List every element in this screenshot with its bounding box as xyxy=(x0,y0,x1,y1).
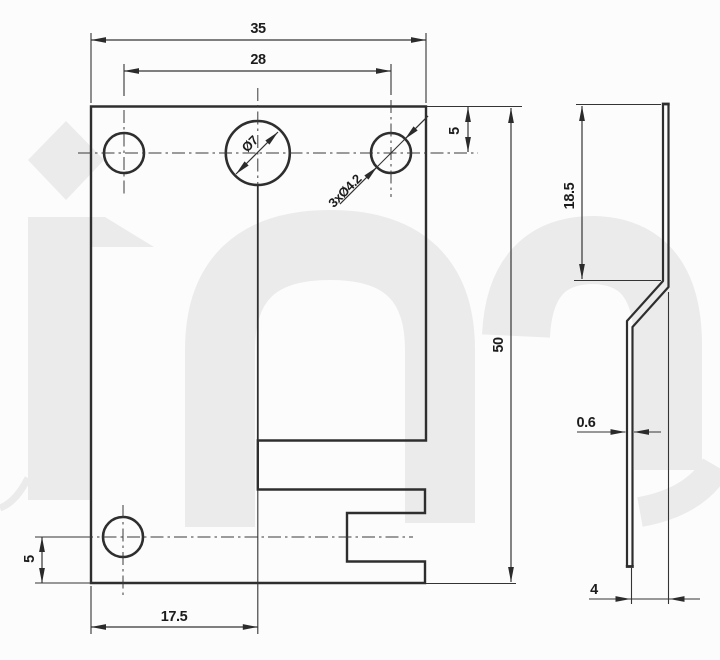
watermark-i-dot xyxy=(28,121,104,200)
dim-label-sheet-thickness: 0.6 xyxy=(577,415,596,431)
technical-drawing-canvas: 35 28 5 50 17.5 5 Ø7 3xØ4.2 xyxy=(0,0,720,660)
dim-label-bottom-hole-x: 17.5 xyxy=(161,609,188,625)
dim-label-overall-height: 50 xyxy=(491,337,507,353)
technical-drawing-page: 35 28 5 50 17.5 5 Ø7 3xØ4.2 xyxy=(0,0,720,660)
dim-label-hole-pitch: 28 xyxy=(250,52,266,68)
dim-label-bend-offset: 4 xyxy=(590,582,598,598)
watermark-m-hump1 xyxy=(220,245,440,527)
dim-label-side-top-length: 18.5 xyxy=(562,182,578,209)
dim-label-bottom-hole-y: 5 xyxy=(22,555,38,563)
dim-label-top-hole-offset: 5 xyxy=(447,127,463,135)
ext-lines-35 xyxy=(91,33,426,103)
watermark-m-tail xyxy=(640,466,716,512)
watermark-corner-swash xyxy=(0,478,28,508)
ext-lines-5-bottom xyxy=(35,537,91,583)
leader-arrow-small-holes-2 xyxy=(405,116,428,139)
dim-label-small-holes: 3xØ4.2 xyxy=(325,171,364,210)
watermark-m-hump2 xyxy=(516,250,668,470)
dim-label-width: 35 xyxy=(250,21,266,37)
